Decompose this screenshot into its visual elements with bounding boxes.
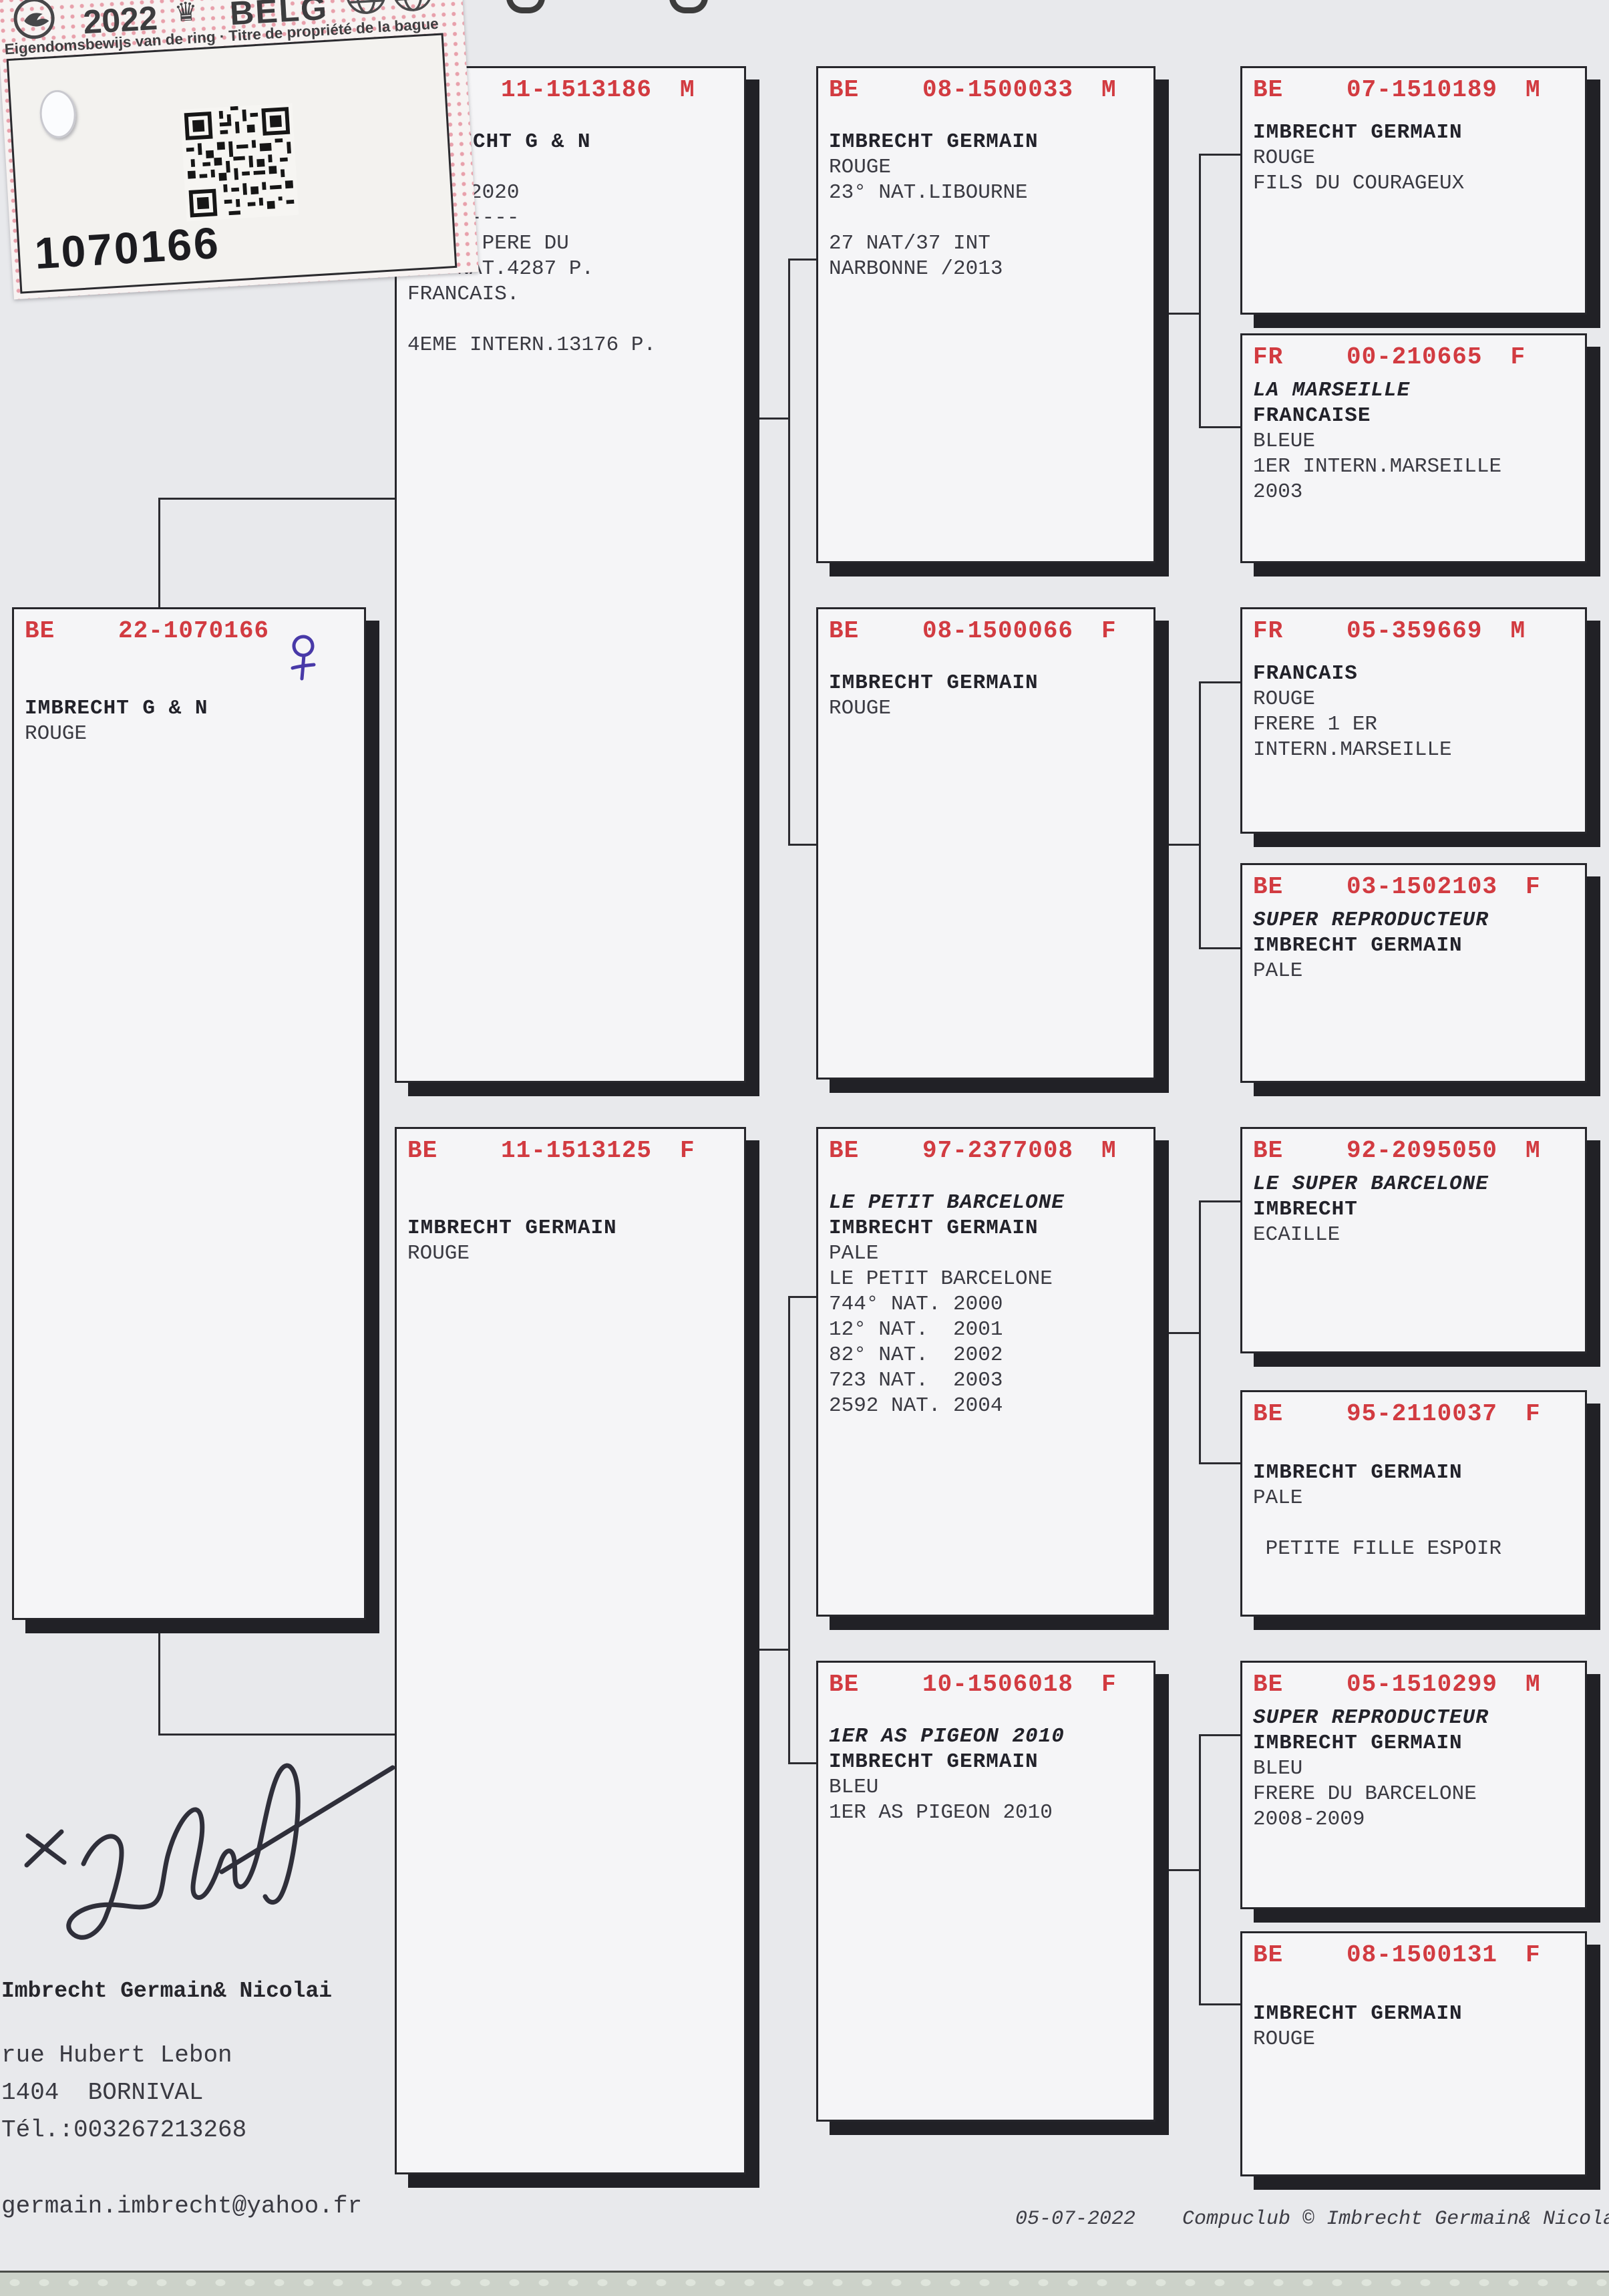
- ring-number: 95-2110037: [1347, 1400, 1497, 1428]
- pigeon-detail-line: SUPER REPRODUCTEUR: [1253, 1705, 1574, 1731]
- ring-country: BE: [1253, 1941, 1347, 1969]
- pigeon-detail-line: ROUGE: [829, 155, 1143, 180]
- ring-number: 08-1500033: [922, 76, 1073, 104]
- pigeon-detail-line: [407, 1190, 733, 1216]
- ring-header: BE92-2095050M: [1253, 1137, 1574, 1170]
- pedigree-box-be-97-2377008: BE97-2377008M LE PETIT BARCELONEIMBRECHT…: [816, 1127, 1155, 1617]
- ring-country: BE: [407, 1137, 501, 1164]
- pigeon-detail-line: IMBRECHT GERMAIN: [1253, 2001, 1574, 2027]
- ring-number-large: 1070166: [33, 217, 222, 279]
- footer-compuclub: Compuclub © Imbrecht Germain& Nicolai: [1182, 2208, 1609, 2231]
- pigeon-details: SUPER REPRODUCTEURIMBRECHT GERMAINPALE: [1253, 908, 1574, 984]
- pigeon-detail-line: 744° NAT. 2000: [829, 1292, 1143, 1317]
- pedigree-box-be-10-1506018: BE10-1506018F 1ER AS PIGEON 2010IMBRECHT…: [816, 1661, 1155, 2122]
- pigeon-detail-line: [1253, 1435, 1574, 1460]
- ring-header: BE11-1513125F: [407, 1137, 733, 1170]
- pedigree-box-be-08-1500066: BE08-1500066F IMBRECHT GERMAINROUGE: [816, 607, 1155, 1080]
- pigeon-detail-line: [407, 307, 733, 333]
- pigeon-detail-line: IMBRECHT GERMAIN: [829, 671, 1143, 696]
- pigeon-detail-line: FRANCAIS.: [407, 282, 733, 307]
- pigeon-detail-line: ECAILLE: [1253, 1222, 1574, 1248]
- ring-sex: F: [1526, 1400, 1541, 1428]
- pigeon-detail-line: NARBONNE /2013: [829, 257, 1143, 282]
- ring-number: 11-1513186: [501, 76, 652, 104]
- ring-country: BE: [1253, 1671, 1347, 1698]
- crown-icon: ♛: [175, 0, 196, 31]
- lineage-connector: [788, 1762, 818, 1764]
- ring-number: 07-1510189: [1347, 76, 1497, 104]
- pigeon-detail-line: [1253, 1511, 1574, 1536]
- ring-header: FR05-359669M: [1253, 617, 1574, 651]
- lineage-connector: [1199, 1200, 1242, 1202]
- pigeon-detail-line: 1ER AS PIGEON 2010: [829, 1800, 1143, 1826]
- page-bottom-edge: [0, 2271, 1609, 2296]
- lineage-connector: [158, 498, 396, 500]
- lineage-connector: [1157, 1869, 1200, 1871]
- pedigree-box-be-95-2110037: BE95-2110037F IMBRECHT GERMAINPALE PETIT…: [1240, 1390, 1587, 1617]
- pigeon-detail-line: IMBRECHT GERMAIN: [1253, 933, 1574, 959]
- ring-country: BE: [829, 617, 922, 645]
- ring-sex: F: [1101, 1671, 1117, 1698]
- lineage-connector: [1199, 947, 1242, 949]
- pigeon-detail-line: LE PETIT BARCELONE: [829, 1190, 1143, 1216]
- ring-number: 92-2095050: [1347, 1137, 1497, 1164]
- pigeon-detail-line: IMBRECHT GERMAIN: [1253, 1460, 1574, 1486]
- ring-sex: M: [1510, 617, 1526, 645]
- pigeon-details: IMBRECHT GERMAINROUGEFILS DU COURAGEUX: [1253, 120, 1574, 196]
- pigeon-detail-line: 23° NAT.LIBOURNE: [829, 180, 1143, 206]
- pigeon-detail-line: IMBRECHT GERMAIN: [1253, 1731, 1574, 1756]
- ring-header: BE07-1510189M: [1253, 76, 1574, 110]
- lineage-connector: [1199, 154, 1201, 428]
- lineage-connector: [1157, 313, 1200, 315]
- pigeon-detail-line: ROUGE: [1253, 687, 1574, 712]
- lineage-connector: [788, 844, 818, 846]
- pigeon-detail-line: PALE: [1253, 959, 1574, 984]
- lineage-connector: [1199, 154, 1242, 156]
- ring-country: BE: [25, 617, 118, 645]
- ring-header: BE08-1500131F: [1253, 1941, 1574, 1975]
- ring-number: 03-1502103: [1347, 873, 1497, 900]
- pigeon-details: FRANCAISROUGEFRERE 1 ERINTERN.MARSEILLE: [1253, 661, 1574, 763]
- ring-sex: M: [1526, 1137, 1541, 1164]
- owner-address-city: 1404 BORNIVAL: [1, 2079, 203, 2106]
- pigeon-detail-line: 1ER AS PIGEON 2010: [829, 1724, 1143, 1750]
- ring-country: BE: [1253, 1137, 1347, 1164]
- pedigree-box-be-08-1500131: BE08-1500131F IMBRECHT GERMAINROUGE: [1240, 1931, 1587, 2176]
- lineage-connector: [158, 498, 160, 610]
- pigeon-detail-line: IMBRECHT G & N: [25, 696, 353, 721]
- ring-sex: F: [680, 1137, 695, 1164]
- ring-number: 08-1500066: [922, 617, 1073, 645]
- ring-country: FR: [1253, 617, 1347, 645]
- pigeon-detail-line: IMBRECHT GERMAIN: [1253, 120, 1574, 146]
- lineage-connector: [1157, 844, 1200, 846]
- pigeon-detail-line: 2008-2009: [1253, 1807, 1574, 1832]
- pigeon-detail-line: 4EME INTERN.13176 P.: [407, 333, 733, 358]
- pigeon-detail-line: 723 NAT. 2003: [829, 1368, 1143, 1393]
- pigeon-details: IMBRECHT GERMAINROUGE: [407, 1190, 733, 1267]
- sticker-card: 1070166: [7, 33, 458, 293]
- pedigree-box-be-92-2095050: BE92-2095050M LE SUPER BARCELONEIMBRECHT…: [1240, 1127, 1587, 1353]
- pigeon-details: SUPER REPRODUCTEURIMBRECHT GERMAINBLEUFR…: [1253, 1705, 1574, 1832]
- ring-sex: M: [1526, 1671, 1541, 1698]
- pigeon-detail-line: PETITE FILLE ESPOIR: [1253, 1536, 1574, 1562]
- pigeon-details: IMBRECHT GERMAINROUGE: [1253, 1976, 1574, 2052]
- pigeon-detail-line: BLEU: [1253, 1756, 1574, 1782]
- lineage-connector: [788, 1296, 818, 1298]
- ring-header: BE97-2377008M: [829, 1137, 1143, 1170]
- ring-country: BE: [829, 76, 922, 104]
- ring-sex: M: [1101, 76, 1117, 104]
- owner-email: germain.imbrecht@yahoo.fr: [1, 2192, 362, 2220]
- pigeon-details: LE SUPER BARCELONEIMBRECHTECAILLE: [1253, 1172, 1574, 1248]
- footer-credit: 05-07-2022Compuclub © Imbrecht Germain& …: [1015, 2208, 1609, 2231]
- lineage-connector: [1157, 1332, 1200, 1334]
- ring-number: 08-1500131: [1347, 1941, 1497, 1969]
- cut-off-text-fragment: [506, 0, 545, 13]
- pedigree-box-be-08-1500033: BE08-1500033M IMBRECHT GERMAINROUGE23° N…: [816, 66, 1155, 563]
- pigeon-detail-line: ROUGE: [1253, 2027, 1574, 2052]
- owner-phone: Tél.:003267213268: [1, 2116, 246, 2144]
- pigeon-detail-line: [1253, 1976, 1574, 2001]
- pedigree-box-be-22-1070166: BE22-1070166 IMBRECHT G & NROUGE: [12, 607, 366, 1620]
- pigeon-detail-line: FILS DU COURAGEUX: [1253, 171, 1574, 196]
- ring-country: BE: [1253, 76, 1347, 104]
- lineage-connector: [788, 259, 818, 261]
- ring-sex: M: [1101, 1137, 1117, 1164]
- pigeon-detail-line: SUPER REPRODUCTEUR: [1253, 908, 1574, 933]
- pigeon-detail-line: ROUGE: [25, 721, 353, 747]
- lineage-connector: [788, 259, 790, 846]
- ring-sex: M: [680, 76, 695, 104]
- footer-date: 05-07-2022: [1015, 2208, 1135, 2231]
- pigeon-detail-line: IMBRECHT GERMAIN: [829, 130, 1143, 155]
- pedigree-box-fr-05-359669: FR05-359669M FRANCAISROUGEFRERE 1 ERINTE…: [1240, 607, 1587, 834]
- pigeon-detail-line: IMBRECHT GERMAIN: [829, 1216, 1143, 1241]
- ring-sex: F: [1510, 343, 1526, 371]
- ring-number: 00-210665: [1347, 343, 1482, 371]
- ring-header: BE08-1500033M: [829, 76, 1143, 110]
- lineage-connector: [788, 1296, 790, 1764]
- pigeon-detail-line: 12° NAT. 2001: [829, 1317, 1143, 1343]
- ring-number: 97-2377008: [922, 1137, 1073, 1164]
- pigeon-detail-line: IMBRECHT: [1253, 1197, 1574, 1222]
- ring-header: FR00-210665F: [1253, 343, 1574, 377]
- ring-country: BE: [1253, 1400, 1347, 1428]
- ring-country: BE: [829, 1137, 922, 1164]
- pigeon-detail-line: 2592 NAT. 2004: [829, 1393, 1143, 1419]
- pedigree-scan-page: BE11-1513186M IMBRECHT G & NROUGE 2020 -…: [0, 0, 1609, 2296]
- cut-off-text-fragment: [669, 0, 708, 13]
- lineage-connector: [1199, 681, 1242, 683]
- pigeon-detail-line: 1ER INTERN.MARSEILLE: [1253, 454, 1574, 480]
- ring-ownership-sticker: 2022 ♛ BELG Eigendomsbewijs van de ring …: [0, 0, 479, 299]
- lineage-connector: [1199, 1462, 1242, 1464]
- pigeon-detail-line: 27 NAT/37 INT: [829, 231, 1143, 257]
- pigeon-details: LA MARSEILLEFRANCAISEBLEUE1ER INTERN.MAR…: [1253, 378, 1574, 505]
- lineage-connector: [1199, 426, 1242, 428]
- pigeon-detail-line: LE PETIT BARCELONE: [829, 1267, 1143, 1292]
- pigeon-detail-line: LE SUPER BARCELONE: [1253, 1172, 1574, 1197]
- pigeon-details: 1ER AS PIGEON 2010IMBRECHT GERMAINBLEU1E…: [829, 1724, 1143, 1826]
- lineage-connector: [746, 1649, 789, 1651]
- owner-address-street: rue Hubert Lebon: [1, 2041, 232, 2069]
- pigeon-detail-line: FRANCAISE: [1253, 403, 1574, 429]
- qr-code: [180, 103, 299, 222]
- pigeon-details: IMBRECHT GERMAINROUGE: [829, 671, 1143, 721]
- ring-number: 05-1510299: [1347, 1671, 1497, 1698]
- pigeon-detail-line: IMBRECHT GERMAIN: [829, 1750, 1143, 1775]
- pigeon-details: IMBRECHT GERMAINPALE PETITE FILLE ESPOIR: [1253, 1435, 1574, 1562]
- ring-header: BE10-1506018F: [829, 1671, 1143, 1704]
- ring-sex: F: [1526, 1941, 1541, 1969]
- pigeon-detail-line: BLEU: [829, 1775, 1143, 1800]
- lineage-connector: [1199, 2003, 1242, 2005]
- ring-number: 11-1513125: [501, 1137, 652, 1164]
- pigeon-detail-line: LA MARSEILLE: [1253, 378, 1574, 403]
- pigeon-detail-line: ROUGE: [1253, 146, 1574, 171]
- pigeon-detail-line: PALE: [1253, 1486, 1574, 1511]
- pigeon-detail-line: INTERN.MARSEILLE: [1253, 737, 1574, 763]
- hole-punch: [39, 89, 77, 139]
- dove-logo-icon: [11, 0, 57, 42]
- pigeon-detail-line: PALE: [829, 1241, 1143, 1267]
- ring-sex: F: [1101, 617, 1117, 645]
- ring-number: 10-1506018: [922, 1671, 1073, 1698]
- ring-sex: M: [1526, 76, 1541, 104]
- pigeon-detail-line: ROUGE: [829, 696, 1143, 721]
- pigeon-detail-line: FRERE 1 ER: [1253, 712, 1574, 737]
- ring-sex: F: [1526, 873, 1541, 900]
- ring-header: BE03-1502103F: [1253, 873, 1574, 907]
- pigeon-detail-line: FRANCAIS: [1253, 661, 1574, 687]
- pedigree-box-be-03-1502103: BE03-1502103F SUPER REPRODUCTEURIMBRECHT…: [1240, 863, 1587, 1083]
- ring-header: BE05-1510299M: [1253, 1671, 1574, 1704]
- pigeon-details: IMBRECHT GERMAINROUGE23° NAT.LIBOURNE 27…: [829, 130, 1143, 282]
- pigeon-detail-line: ROUGE: [407, 1241, 733, 1267]
- pigeon-detail-line: [829, 206, 1143, 231]
- owner-name: Imbrecht Germain& Nicolai: [1, 1979, 332, 2003]
- pigeon-detail-line: 82° NAT. 2002: [829, 1343, 1143, 1368]
- ring-number: 22-1070166: [118, 617, 269, 645]
- lineage-connector: [746, 418, 789, 420]
- pedigree-box-fr-00-210665: FR00-210665F LA MARSEILLEFRANCAISEBLEUE1…: [1240, 333, 1587, 563]
- pedigree-box-be-11-1513125: BE11-1513125F IMBRECHT GERMAINROUGE: [395, 1127, 746, 2174]
- handwritten-signature: [13, 1697, 414, 1964]
- pedigree-box-be-07-1510189: BE07-1510189M IMBRECHT GERMAINROUGEFILS …: [1240, 66, 1587, 315]
- lineage-connector: [1199, 1734, 1242, 1736]
- handwritten-female-symbol: [286, 633, 321, 684]
- ring-country: FR: [1253, 343, 1347, 371]
- pigeon-detail-line: FRERE DU BARCELONE: [1253, 1782, 1574, 1807]
- pigeon-details: LE PETIT BARCELONEIMBRECHT GERMAINPALELE…: [829, 1190, 1143, 1419]
- ring-country: BE: [829, 1671, 922, 1698]
- lineage-connector: [1199, 681, 1201, 949]
- ring-header: BE08-1500066F: [829, 617, 1143, 651]
- pigeon-detail-line: 2003: [1253, 480, 1574, 505]
- pedigree-box-be-05-1510299: BE05-1510299M SUPER REPRODUCTEURIMBRECHT…: [1240, 1661, 1587, 1909]
- pigeon-detail-line: IMBRECHT GERMAIN: [407, 1216, 733, 1241]
- ring-number: 05-359669: [1347, 617, 1482, 645]
- pigeon-detail-line: BLEUE: [1253, 429, 1574, 454]
- ring-country: BE: [1253, 873, 1347, 900]
- ring-header: BE95-2110037F: [1253, 1400, 1574, 1434]
